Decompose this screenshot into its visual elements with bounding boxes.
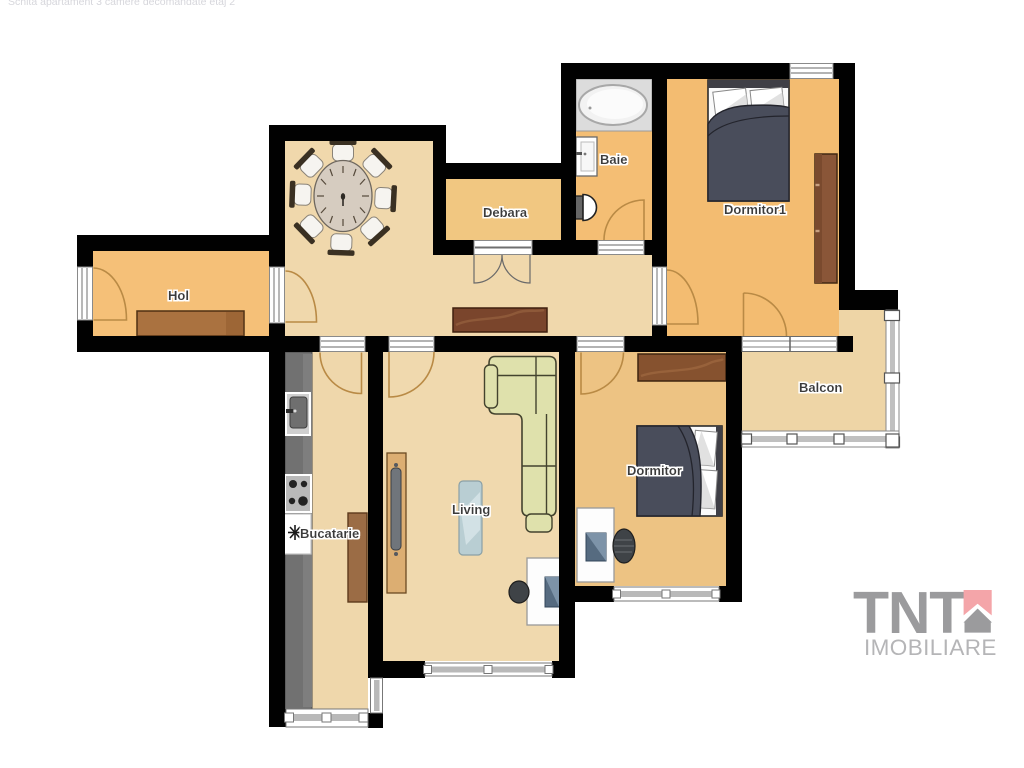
svg-text:Schita apartament 3 camere dec: Schita apartament 3 camere decomandate e… <box>8 0 235 8</box>
svg-text:Dormitor1: Dormitor1 <box>724 202 786 217</box>
svg-text:Dormitor: Dormitor <box>627 463 682 478</box>
svg-text:Bucatarie: Bucatarie <box>300 526 359 541</box>
svg-text:Debara: Debara <box>483 205 528 220</box>
svg-text:Balcon: Balcon <box>799 380 842 395</box>
svg-text:Hol: Hol <box>168 288 189 303</box>
svg-text:IMOBILIARE: IMOBILIARE <box>864 635 997 660</box>
svg-text:Living: Living <box>452 502 490 517</box>
svg-text:Baie: Baie <box>600 152 627 167</box>
